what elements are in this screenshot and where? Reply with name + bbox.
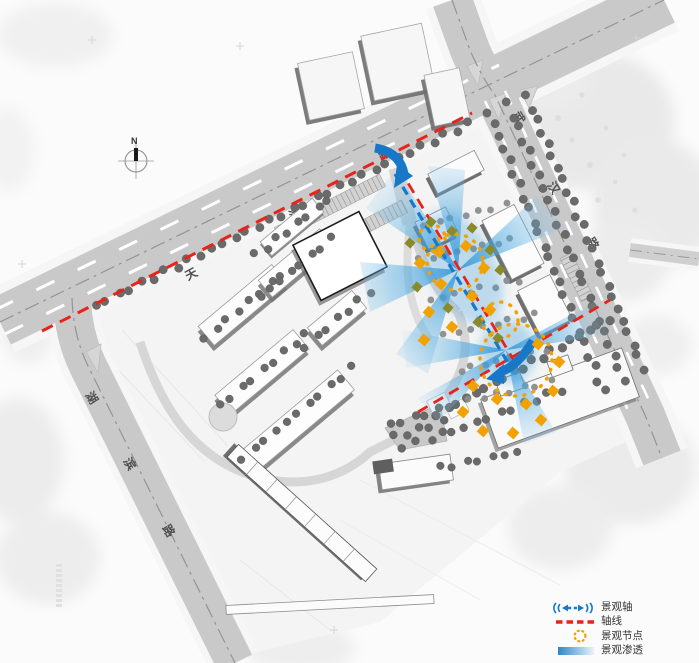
north-compass: N [118, 136, 154, 179]
axis-line-symbol [548, 616, 598, 628]
landscape-penetration-symbol [548, 645, 598, 657]
legend-label: 景观节点 [601, 630, 643, 643]
utility-block [372, 459, 394, 475]
legend-label: 景观渗透 [601, 644, 643, 657]
site-plan-canvas: 天 津 路 武 汉 路 湖 滨 路 [0, 0, 699, 663]
legend-item-landscape-axis: 景观轴 [548, 601, 643, 614]
legend-item-landscape-node: 景观节点 [548, 629, 643, 643]
legend-item-landscape-penetration: 景观渗透 [548, 644, 643, 657]
watermark-strip [56, 564, 62, 607]
legend-label: 轴线 [601, 615, 622, 628]
legend-label: 景观轴 [601, 601, 633, 614]
existing-building [294, 52, 366, 125]
legend: 景观轴 轴线 景观节点 景观渗透 [548, 601, 643, 657]
compass-needle [134, 148, 138, 161]
landscape-node-symbol [548, 629, 598, 643]
landscape-axis-symbol [548, 602, 598, 614]
compass-north-label: N [131, 136, 138, 146]
legend-item-axis-line: 轴线 [548, 615, 643, 628]
site-plan-page: 天 津 路 武 汉 路 湖 滨 路 [0, 0, 699, 663]
